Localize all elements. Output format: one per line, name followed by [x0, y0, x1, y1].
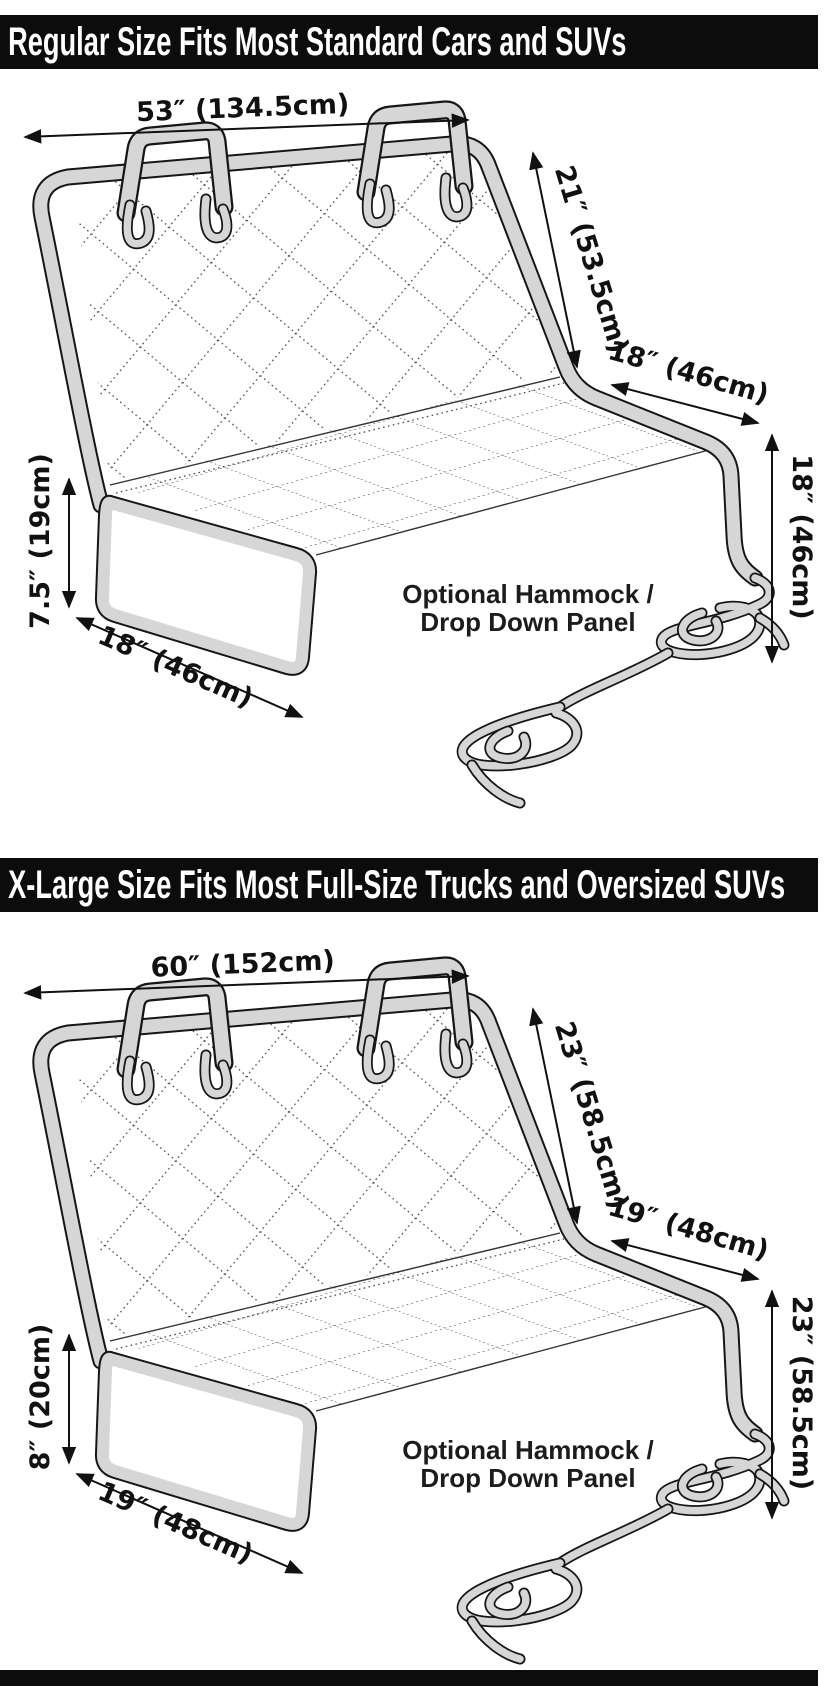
dim-flap-height-label: 7.5″ (19cm) — [25, 453, 56, 629]
diagram-regular-size: 53″ (134.5cm) 21″ (53.5cm) 18″ (46cm) 18… — [0, 85, 828, 815]
dim-seat-depth-label: 19″ (48cm) — [605, 1191, 773, 1266]
page: { "banners": [ { "title": "Regular Size … — [0, 0, 828, 1686]
dim-back-height-label: 21″ (53.5cm) — [548, 162, 635, 357]
hammock-label-line2: Drop Down Panel — [420, 607, 635, 637]
seat-cover-illustration — [41, 110, 784, 803]
dim-flap-height-label: 8″ (20cm) — [25, 1324, 56, 1471]
banner-xlarge-size: X-Large Size Fits Most Full-Size Trucks … — [0, 858, 818, 912]
hammock-label-line1: Optional Hammock / — [402, 579, 653, 609]
dim-seat-depth-label: 18″ (46cm) — [605, 335, 773, 410]
diagram-xlarge-size: 60″ (152cm) 23″ (58.5cm) 19″ (48cm) 23″ … — [0, 941, 828, 1671]
hammock-label-line1: Optional Hammock / — [402, 1435, 653, 1465]
hammock-label-line2: Drop Down Panel — [420, 1463, 635, 1493]
dim-top-width-label: 53″ (134.5cm) — [135, 89, 349, 129]
banner-regular-size: Regular Size Fits Most Standard Cars and… — [0, 15, 818, 69]
bottom-frame-bar — [0, 1670, 818, 1686]
dim-side-drop-label: 23″ (58.5cm) — [786, 1296, 817, 1490]
banner-regular-size-title: Regular Size Fits Most Standard Cars and… — [0, 15, 626, 69]
dim-top-width-label: 60″ (152cm) — [150, 945, 335, 983]
dim-back-height-label: 23″ (58.5cm) — [548, 1018, 635, 1213]
seat-cover-illustration — [41, 966, 784, 1659]
dim-side-drop-label: 18″ (46cm) — [786, 454, 817, 619]
banner-xlarge-size-title: X-Large Size Fits Most Full-Size Trucks … — [0, 858, 785, 912]
